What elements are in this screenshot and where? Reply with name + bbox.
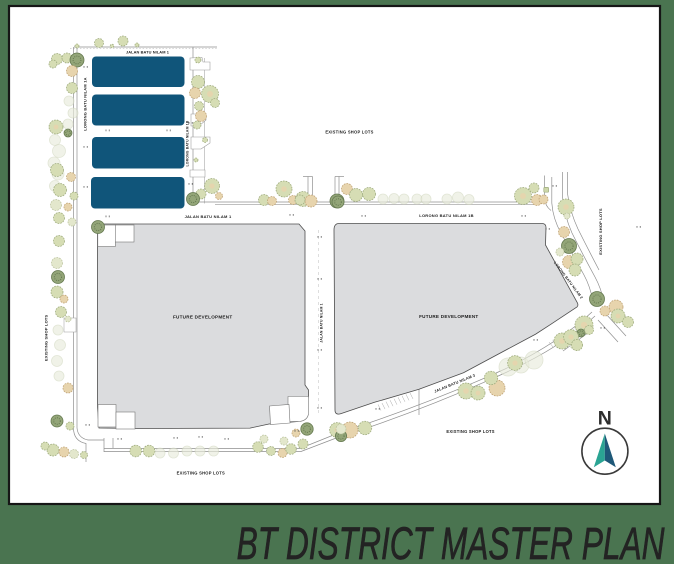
svg-text:EXISTING SHOP LOTS: EXISTING SHOP LOTS [325, 129, 373, 134]
svg-text:FUTURE DEVELOPMENT: FUTURE DEVELOPMENT [173, 315, 232, 320]
svg-text:JALAN BATU NILAM 1: JALAN BATU NILAM 1 [185, 214, 232, 219]
svg-text:JALAN BATU NILAM 1: JALAN BATU NILAM 1 [126, 50, 170, 55]
svg-text:LORONG BATU NILAM 1A: LORONG BATU NILAM 1A [83, 77, 88, 130]
svg-text:EXISTING SHOP LOTS: EXISTING SHOP LOTS [598, 208, 603, 255]
svg-text:LORONG BATU NILAM 1B: LORONG BATU NILAM 1B [186, 120, 190, 166]
svg-text:EXISTING SHOP LOTS: EXISTING SHOP LOTS [446, 429, 494, 434]
svg-text:EXISTING SHOP LOTS: EXISTING SHOP LOTS [177, 470, 225, 475]
svg-text:EXISTING SHOP LOTS: EXISTING SHOP LOTS [44, 314, 49, 361]
svg-text:BT DISTRICT MASTER PLAN: BT DISTRICT MASTER PLAN [237, 520, 666, 564]
svg-text:FUTURE DEVELOPMENT: FUTURE DEVELOPMENT [419, 314, 478, 319]
svg-text:JALAN BATU NILAM 1: JALAN BATU NILAM 1 [320, 303, 324, 343]
svg-text:LORONG BATU NILAM 1B: LORONG BATU NILAM 1B [419, 213, 473, 218]
svg-text:N: N [598, 408, 612, 430]
